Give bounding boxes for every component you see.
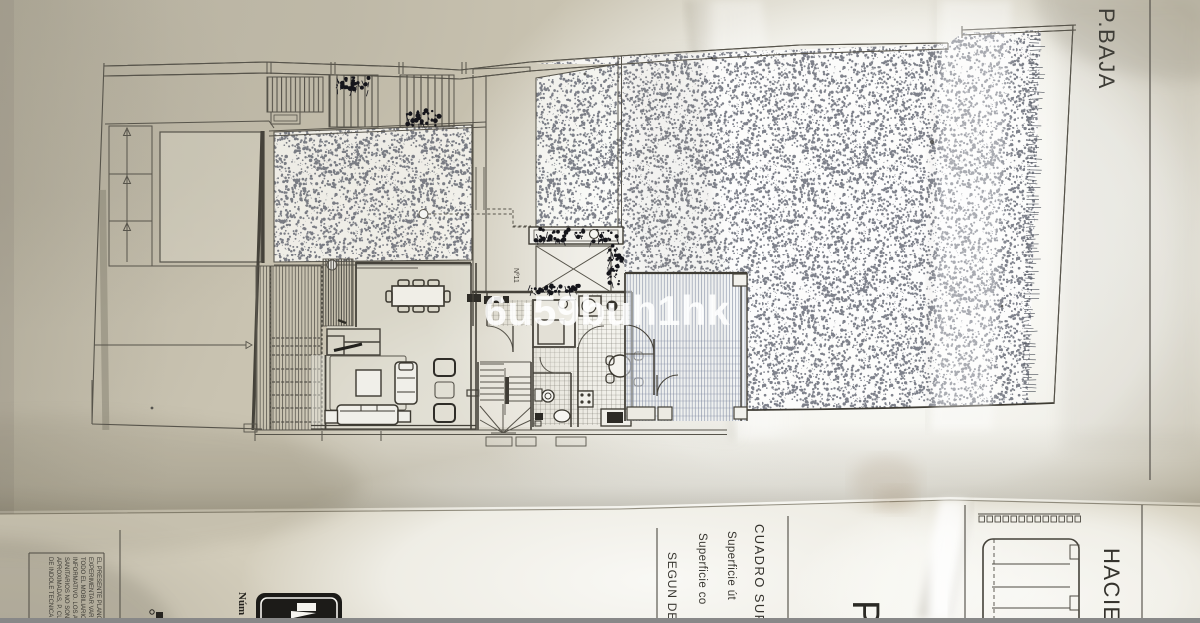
svg-text:6u59buh1hk: 6u59buh1hk [484, 287, 731, 334]
svg-text:CUADRO SUP: CUADRO SUP [752, 524, 767, 618]
svg-text:Superficie co: Superficie co [696, 533, 708, 605]
svg-text:HACIE: HACIE [1099, 548, 1124, 618]
svg-text:Nº11: Nº11 [512, 268, 519, 283]
svg-text:EXPERIMENTAR VARIACIONES: EXPERIMENTAR VARIACIONES [87, 557, 93, 618]
svg-text:EL PRESENTE PLANO PUEDE: EL PRESENTE PLANO PUEDE [95, 557, 101, 618]
svg-text:DE INDOLE TECNICA O LEGAL: DE INDOLE TECNICA O LEGAL [47, 557, 53, 618]
svg-text:P.BAJA: P.BAJA [1094, 8, 1119, 90]
svg-text:SEGUN DE: SEGUN DE [665, 552, 679, 618]
svg-text:P: P [844, 600, 886, 618]
svg-text:Superficie út: Superficie út [725, 531, 737, 601]
svg-text:INFORMATIVO. LOS APARATOS: INFORMATIVO. LOS APARATOS [71, 557, 77, 618]
svg-text:Núm: Núm [236, 592, 248, 615]
svg-text:SANITARIOS NO SON EXACTOS: SANITARIOS NO SON EXACTOS [63, 557, 69, 618]
svg-text:APROXIMADAS, P. CUESTIONES: APROXIMADAS, P. CUESTIONES [55, 557, 61, 618]
svg-text:TODO EL MOBILIARIO ES: TODO EL MOBILIARIO ES [79, 557, 85, 618]
